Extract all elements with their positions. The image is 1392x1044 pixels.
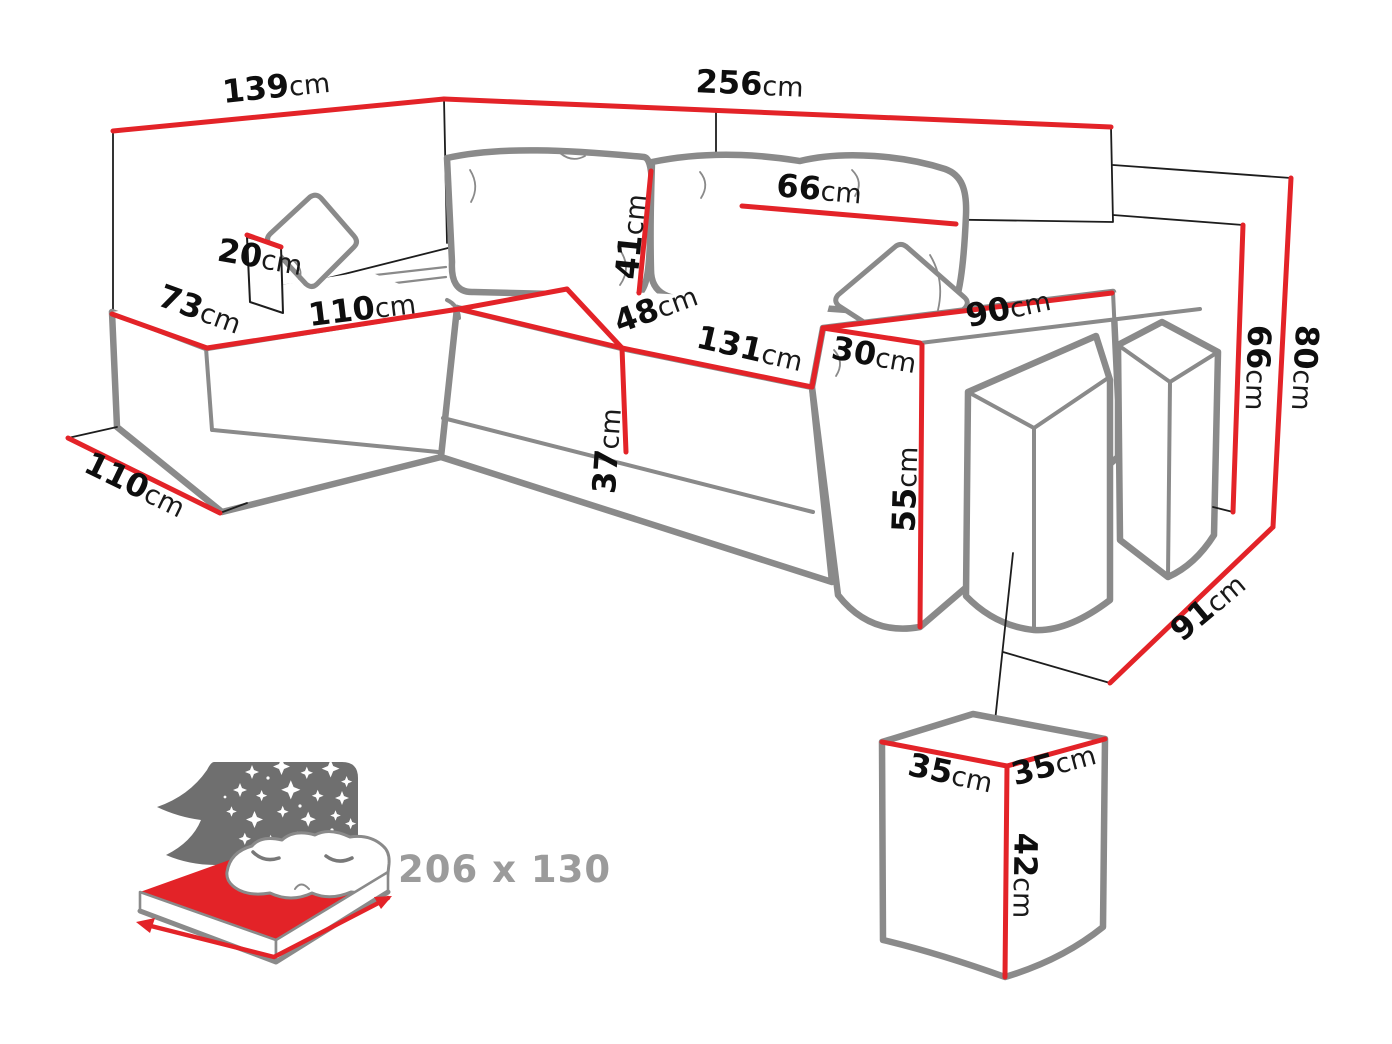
dim-41-value: 41 xyxy=(608,233,650,281)
dim-110-chaise-unit: cm xyxy=(373,289,418,325)
ext-91 xyxy=(1003,652,1110,683)
dim-55-value: 55 xyxy=(884,487,924,533)
dim-66-height-unit: cm xyxy=(1239,369,1271,411)
dim-66-height-value: 66 xyxy=(1239,324,1279,370)
dim-42-unit: cm xyxy=(1006,877,1038,919)
dim-66-height: 66 cm xyxy=(1238,324,1279,411)
dim-256-value: 256 xyxy=(695,62,763,103)
dim-42-value: 42 xyxy=(1006,832,1045,877)
dim-66-cushion-value: 66 xyxy=(775,166,823,208)
dim-80-height-value: 80 xyxy=(1286,324,1326,370)
pouf-detail-drawing: 35 cm 35 cm 42 cm xyxy=(882,714,1105,977)
dim-20-value: 20 xyxy=(215,231,265,276)
sofa-dimension-diagram: 139 cm 256 cm 20 cm 73 cm 110 cm 41 cm 6… xyxy=(0,0,1392,1044)
dim-37-unit: cm xyxy=(594,407,628,450)
ext-66-top xyxy=(1113,215,1243,225)
ext-110-left xyxy=(68,427,117,438)
dim-30-value: 30 xyxy=(829,329,879,374)
bed-size-text: 206 x 130 xyxy=(398,848,611,891)
dim-139-unit: cm xyxy=(287,68,331,103)
ext-80-top xyxy=(1113,165,1291,178)
dim-55-unit: cm xyxy=(892,446,924,488)
dim-80-height: 80 cm xyxy=(1284,324,1326,412)
dim-139: 139 cm xyxy=(220,62,331,111)
dim-256: 256 cm xyxy=(695,62,805,105)
pouf-right-front-edge xyxy=(1168,382,1170,577)
dim-41-unit: cm xyxy=(618,193,653,237)
pouf-front xyxy=(966,336,1110,630)
dim-139-value: 139 xyxy=(220,66,290,111)
bed-size-label: 206 x 130 xyxy=(398,848,611,891)
dim-110-chaise-value: 110 xyxy=(306,288,377,334)
dim-37-value: 37 xyxy=(585,448,626,495)
chaise-block xyxy=(112,308,457,512)
dim-256-unit: cm xyxy=(762,71,804,104)
dim-80-height-unit: cm xyxy=(1285,369,1318,412)
sleep-function-icon xyxy=(136,758,392,962)
dim-91: 91 cm xyxy=(1163,565,1253,649)
diagram-canvas: 139 cm 256 cm 20 cm 73 cm 110 cm 41 cm 6… xyxy=(0,0,1392,1044)
dim-66-cushion-unit: cm xyxy=(819,176,863,210)
